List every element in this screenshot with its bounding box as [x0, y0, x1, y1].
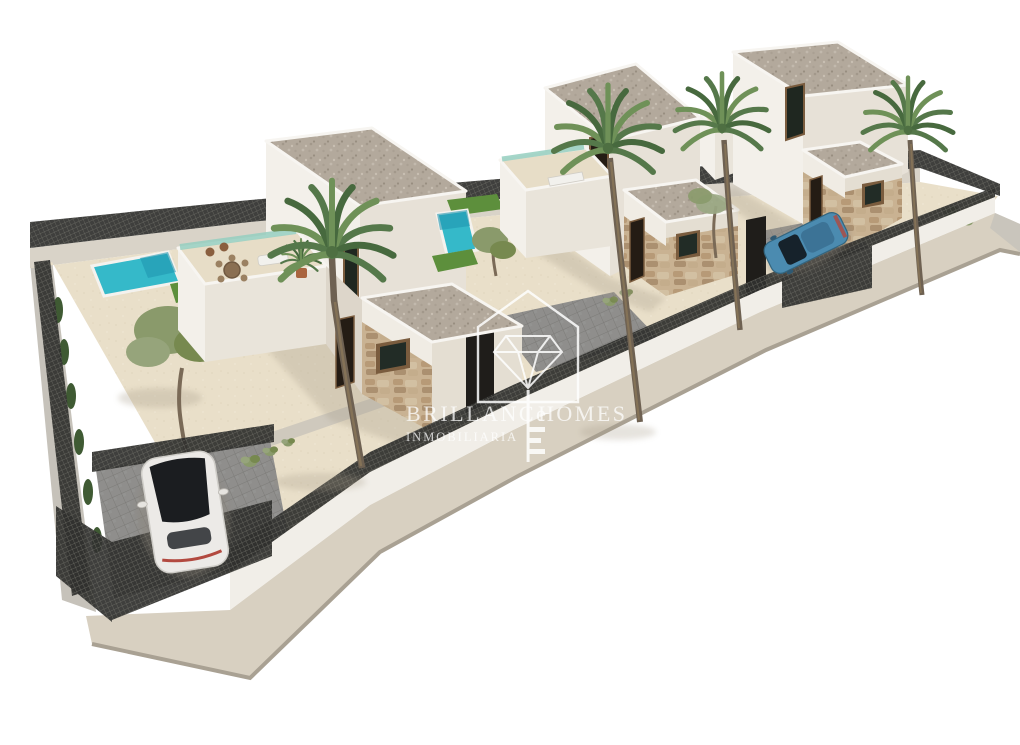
pouf	[220, 243, 229, 252]
villa2-stone-window	[676, 230, 700, 260]
pouf	[206, 248, 215, 257]
watermark-subtitle: INMOBILIARIA	[406, 430, 518, 444]
watermark-brand-left: BRILLANCe	[406, 401, 548, 426]
villa-development-render: BRILLANCe HOMES INMOBILIARIA	[0, 0, 1020, 745]
villa3-tower-window	[786, 84, 804, 140]
olive-tree-shadow	[118, 388, 202, 408]
villa2-onestorey-door	[630, 218, 644, 282]
villa1-stone-window	[376, 338, 410, 374]
villa3-stone-window	[862, 180, 884, 208]
villa-render-page: BRILLANCe HOMES INMOBILIARIA	[0, 0, 1020, 745]
watermark-brand-right: HOMES	[538, 401, 628, 426]
terrace-table	[224, 262, 240, 278]
